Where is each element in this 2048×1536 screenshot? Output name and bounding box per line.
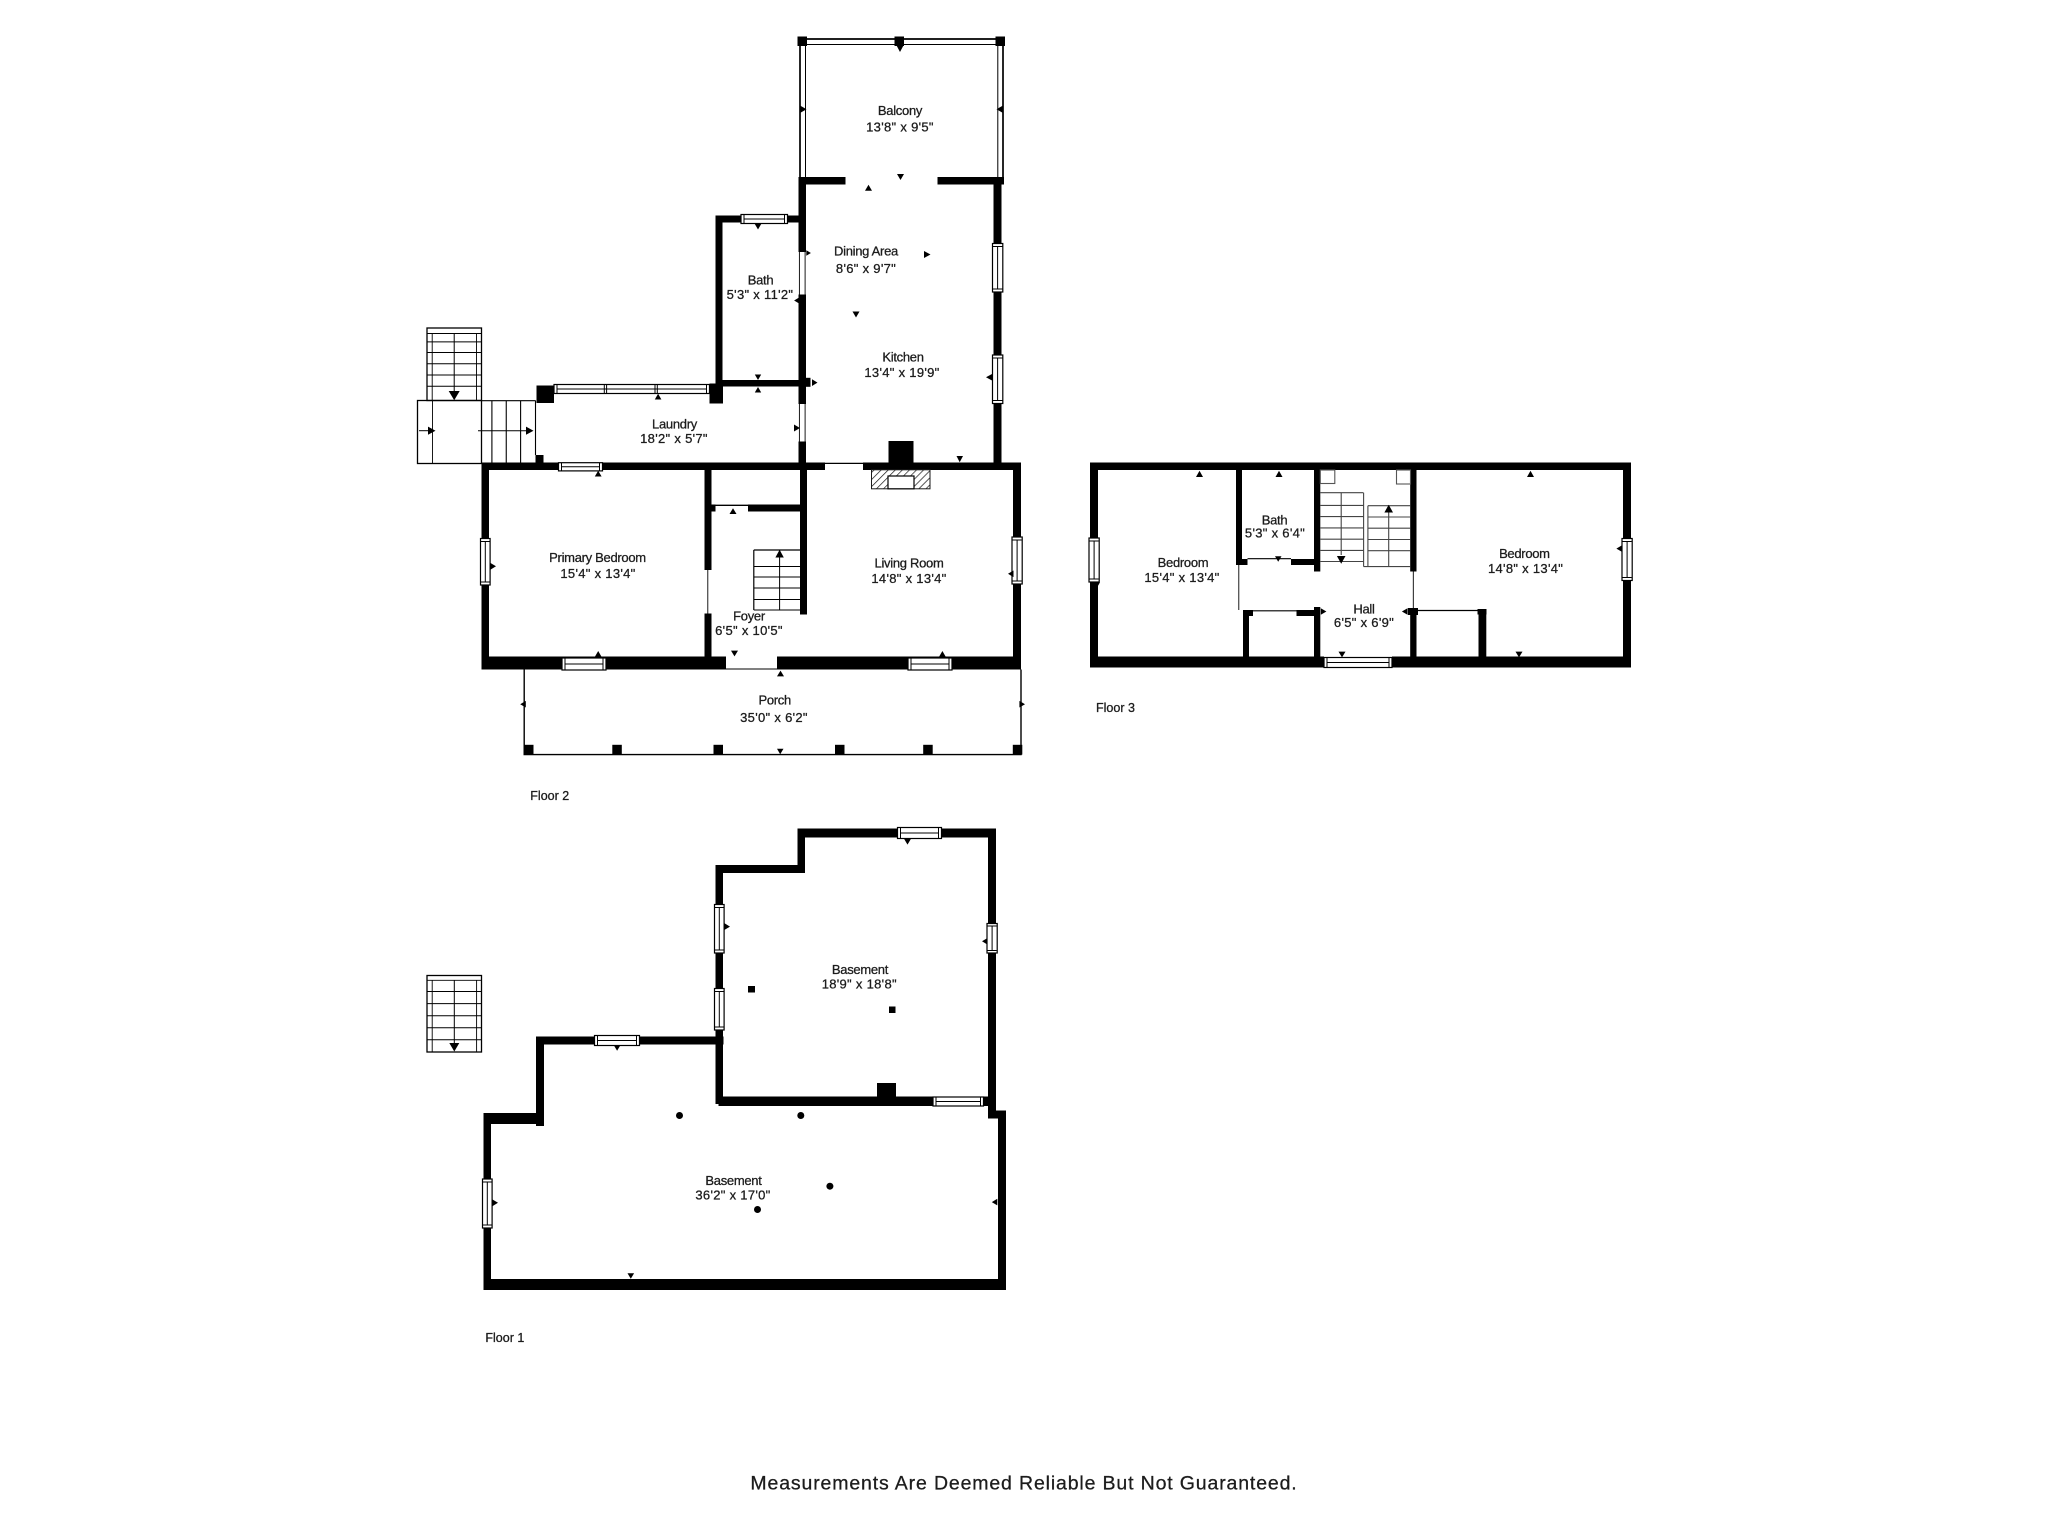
svg-text:Laundry: Laundry — [652, 417, 698, 432]
svg-text:Kitchen: Kitchen — [882, 350, 923, 365]
svg-text:Balcony: Balcony — [878, 103, 923, 118]
svg-text:Floor 3: Floor 3 — [1096, 701, 1135, 715]
svg-text:6'5" x 10'5": 6'5" x 10'5" — [715, 623, 783, 638]
svg-text:36'2" x 17'0": 36'2" x 17'0" — [695, 1188, 770, 1203]
svg-text:18'9" x 18'8": 18'9" x 18'8" — [822, 977, 897, 992]
svg-text:15'4" x 13'4": 15'4" x 13'4" — [560, 566, 635, 581]
svg-text:Foyer: Foyer — [733, 609, 766, 624]
svg-text:Porch: Porch — [758, 693, 791, 708]
svg-text:14'8" x 13'4": 14'8" x 13'4" — [1488, 561, 1563, 576]
svg-text:5'3" x 6'4": 5'3" x 6'4" — [1245, 526, 1305, 541]
svg-text:Primary Bedroom: Primary Bedroom — [549, 550, 646, 565]
svg-text:14'8" x 13'4": 14'8" x 13'4" — [871, 571, 946, 586]
svg-text:8'6" x 9'7": 8'6" x 9'7" — [836, 261, 896, 276]
svg-text:Basement: Basement — [705, 1173, 762, 1188]
svg-text:Bedroom: Bedroom — [1158, 555, 1209, 570]
svg-text:Bath: Bath — [748, 273, 774, 288]
svg-text:5'3" x 11'2": 5'3" x 11'2" — [727, 287, 794, 302]
svg-text:18'2" x 5'7": 18'2" x 5'7" — [640, 431, 708, 446]
svg-text:Living Room: Living Room — [875, 556, 944, 571]
svg-text:Dining Area: Dining Area — [834, 244, 899, 259]
svg-text:6'5" x 6'9": 6'5" x 6'9" — [1334, 615, 1394, 630]
svg-text:13'4" x 19'9": 13'4" x 19'9" — [864, 365, 939, 380]
svg-text:Floor 1: Floor 1 — [485, 1331, 524, 1345]
svg-text:13'8" x 9'5": 13'8" x 9'5" — [866, 120, 934, 135]
svg-text:35'0" x 6'2": 35'0" x 6'2" — [740, 710, 808, 725]
svg-text:Basement: Basement — [832, 962, 889, 977]
svg-text:15'4" x 13'4": 15'4" x 13'4" — [1144, 570, 1219, 585]
svg-text:Measurements Are Deemed Reliab: Measurements Are Deemed Reliable But Not… — [750, 1473, 1297, 1495]
svg-text:Bedroom: Bedroom — [1499, 546, 1550, 561]
svg-text:Floor 2: Floor 2 — [530, 789, 569, 803]
